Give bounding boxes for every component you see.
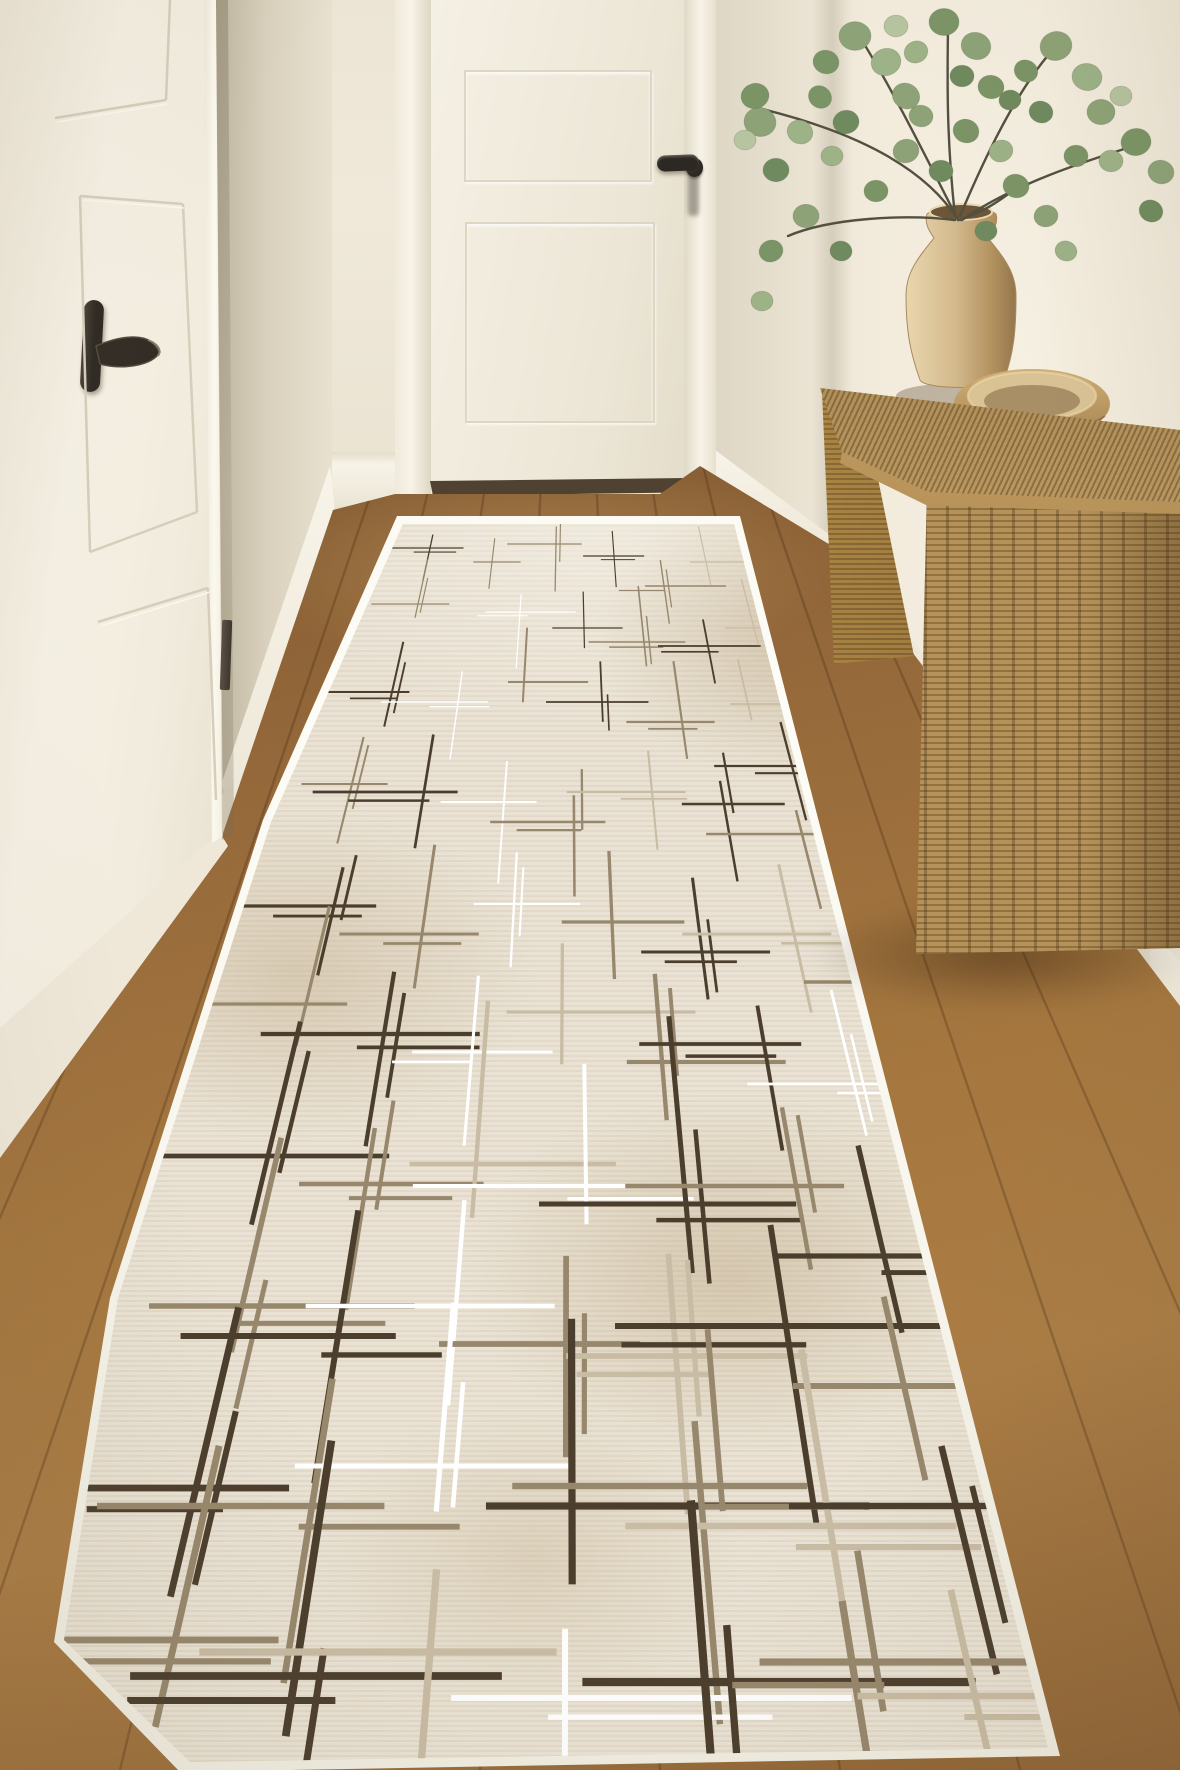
hallway-photo (0, 0, 1180, 1770)
eucalyptus-plant (0, 0, 1180, 1770)
